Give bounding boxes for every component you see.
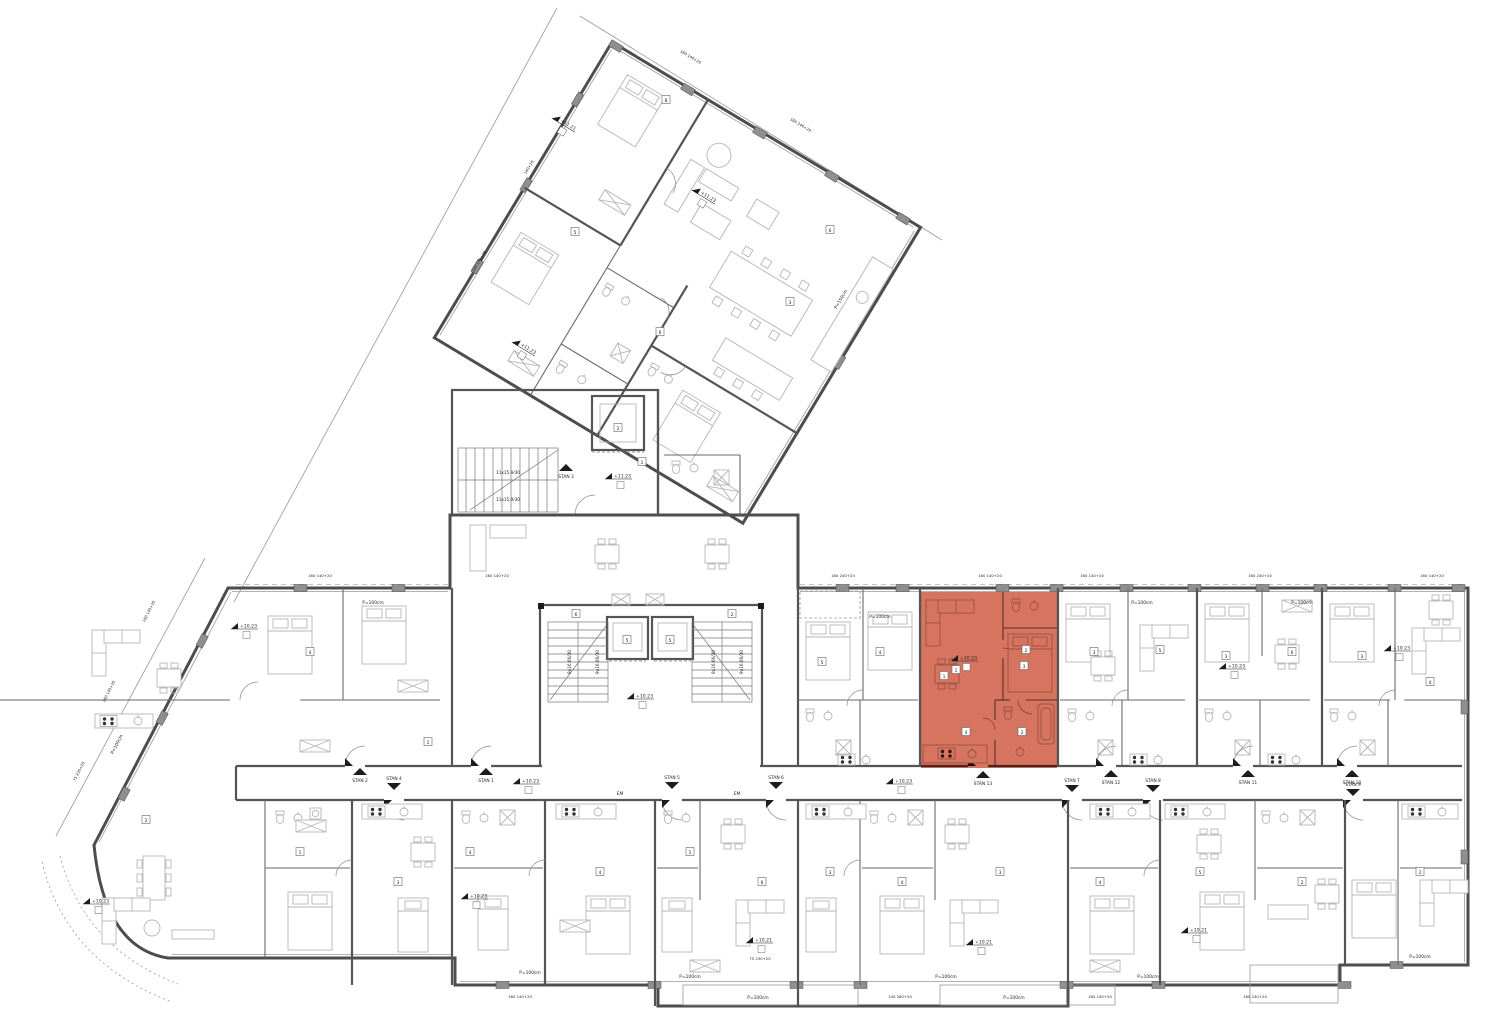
svg-text:2: 2	[1025, 648, 1028, 654]
room-tag: 4	[596, 868, 604, 876]
svg-text:1: 1	[641, 460, 644, 466]
svg-text:P=100cm: P=100cm	[1291, 600, 1312, 606]
room-tag: 4	[1426, 678, 1434, 686]
svg-text:1: 1	[943, 674, 946, 680]
room-tag: 2	[1298, 878, 1306, 886]
room-tag: 5	[666, 636, 674, 644]
svg-text:75 230+20: 75 230+20	[72, 760, 86, 782]
room-tag: 5	[571, 228, 579, 236]
svg-text:6: 6	[659, 330, 662, 336]
unit-label: STAN 8	[1145, 778, 1161, 792]
svg-text:STAN 4: STAN 4	[386, 776, 402, 782]
svg-text:3: 3	[1023, 664, 1026, 670]
room-tag: 1	[296, 848, 304, 856]
room-tag: 8	[662, 96, 670, 104]
room-tag: 4	[962, 728, 970, 736]
room-number-tags: 4154123536341344163434522256312655213248…	[142, 96, 1434, 886]
svg-text:160 140+20: 160 140+20	[679, 48, 702, 65]
room-tag: 1	[638, 458, 646, 466]
svg-text:4: 4	[469, 850, 472, 856]
svg-text:11x15.9/30: 11x15.9/30	[496, 470, 520, 475]
svg-text:1: 1	[689, 850, 692, 856]
svg-text:4: 4	[901, 880, 904, 886]
svg-text:P=100cm: P=100cm	[747, 995, 768, 1001]
svg-text:160 140+20: 160 140+20	[101, 679, 116, 703]
svg-text:6: 6	[829, 228, 832, 234]
svg-text:160 240+20: 160 240+20	[1248, 573, 1272, 578]
svg-text:STAN 1: STAN 1	[478, 778, 494, 784]
unit-label: STAN 6	[768, 775, 784, 789]
svg-text:P=100cm: P=100cm	[1131, 600, 1152, 606]
parcel-lines	[42, 8, 942, 1002]
svg-text:STAN 7: STAN 7	[1064, 778, 1080, 784]
svg-text:P=100cm: P=100cm	[1137, 974, 1158, 980]
svg-text:4: 4	[965, 730, 968, 736]
svg-text:2: 2	[1021, 730, 1024, 736]
svg-text:5: 5	[669, 638, 672, 644]
svg-text:3: 3	[999, 870, 1002, 876]
room-tag: 6	[826, 226, 834, 234]
svg-text:1: 1	[955, 668, 958, 674]
svg-text:2: 2	[731, 612, 734, 618]
svg-text:+10.23: +10.23	[1228, 664, 1245, 670]
room-tag: 3	[1020, 662, 1028, 670]
unit-label: STAN 3	[558, 464, 574, 480]
svg-text:+10.23: +10.23	[92, 899, 109, 905]
svg-text:STAN 13: STAN 13	[974, 781, 993, 787]
svg-text:5: 5	[1159, 648, 1162, 654]
svg-text:3: 3	[789, 300, 792, 306]
svg-text:P=100cm: P=100cm	[679, 974, 700, 980]
svg-text:9x16.66/30: 9x16.66/30	[567, 650, 572, 674]
room-tag: 6	[656, 328, 664, 336]
stair-core	[538, 594, 764, 766]
room-tag: 2	[1022, 646, 1030, 654]
svg-text:75 230+20: 75 230+20	[749, 956, 771, 961]
svg-text:P=100cm: P=100cm	[869, 614, 890, 620]
svg-text:+10.23: +10.23	[470, 894, 487, 900]
svg-text:P=100cm: P=100cm	[362, 600, 383, 606]
svg-text:+10.23: +10.23	[522, 779, 539, 785]
svg-text:5: 5	[574, 230, 577, 236]
upper-staircase	[458, 448, 558, 512]
svg-text:160 240+20: 160 240+20	[831, 573, 855, 578]
svg-text:3: 3	[1361, 654, 1364, 660]
svg-text:4: 4	[309, 650, 312, 656]
svg-text:STAN 8: STAN 8	[1145, 778, 1161, 784]
level-marker: +11.23	[605, 473, 632, 489]
svg-text:160 140+20: 160 140+20	[1080, 573, 1104, 578]
svg-text:2: 2	[145, 818, 148, 824]
svg-text:STAN 11: STAN 11	[1239, 780, 1258, 786]
svg-text:3: 3	[1225, 654, 1228, 660]
svg-text:6: 6	[1291, 650, 1294, 656]
room-tag: 2	[142, 816, 150, 824]
svg-text:+10.23: +10.23	[240, 624, 257, 630]
svg-text:3: 3	[829, 870, 832, 876]
svg-text:3: 3	[1093, 650, 1096, 656]
room-tag: 3	[1358, 652, 1366, 660]
svg-text:8: 8	[665, 98, 668, 104]
svg-text:160 140+20: 160 140+20	[1088, 994, 1112, 999]
room-tag: 1	[424, 738, 432, 746]
svg-text:P=100cm: P=100cm	[1409, 954, 1430, 960]
room-tag: 5	[1196, 868, 1204, 876]
level-marker: +10.23	[886, 778, 913, 794]
level-marker: +10.23	[1219, 663, 1246, 679]
svg-text:+11.23: +11.23	[614, 474, 631, 480]
svg-text:4: 4	[879, 650, 882, 656]
unit-label: STAN 13	[974, 771, 993, 787]
svg-text:160 140+20: 160 140+20	[1420, 573, 1444, 578]
upper-wing	[432, 39, 924, 525]
floor-plan-canvas: STAN 2STAN 4STAN 1STAN 3STAN 5STAN 6STAN…	[0, 0, 1500, 1013]
svg-text:1: 1	[299, 850, 302, 856]
svg-text:160 140+20: 160 140+20	[485, 573, 509, 578]
room-tag: 4	[1096, 878, 1104, 886]
room-tag: 6	[572, 610, 580, 618]
svg-text:P=100cm: P=100cm	[110, 734, 125, 756]
svg-text:+10.23: +10.23	[960, 656, 977, 662]
svg-text:2: 2	[1301, 880, 1304, 886]
svg-text:STAN 6: STAN 6	[768, 775, 784, 781]
room-tag: 3	[826, 868, 834, 876]
room-tag: 4	[306, 648, 314, 656]
svg-text:160 140+20: 160 140+20	[141, 599, 156, 623]
svg-text:5: 5	[821, 660, 824, 666]
room-tag: 1	[686, 848, 694, 856]
svg-text:160 240+20: 160 240+20	[1243, 994, 1267, 999]
level-marker: +10.23	[1384, 645, 1411, 661]
svg-text:160 140+20: 160 140+20	[508, 994, 532, 999]
room-tag: 2	[614, 424, 622, 432]
svg-text:9x16.66/30: 9x16.66/30	[711, 650, 716, 674]
unit-label: STAN 7	[1064, 778, 1080, 792]
unit-label: STAN 1	[478, 768, 494, 784]
unit-label: STAN 12	[1102, 770, 1121, 786]
svg-text:160 240+20: 160 240+20	[789, 116, 812, 133]
svg-text:2: 2	[1419, 870, 1422, 876]
level-markers: +10.23+10.23+10.23+10.23+10.23+10.23+10.…	[83, 113, 1411, 954]
room-tag: 3	[394, 878, 402, 886]
room-tag: 4	[466, 848, 474, 856]
svg-text:5: 5	[1199, 870, 1202, 876]
room-tag: 2	[1018, 728, 1026, 736]
svg-text:6: 6	[761, 880, 764, 886]
svg-text:STAN 12: STAN 12	[1102, 780, 1121, 786]
svg-text:P=100cm: P=100cm	[519, 970, 540, 976]
svg-text:3: 3	[397, 880, 400, 886]
svg-text:+10.23: +10.23	[895, 779, 912, 785]
unit-label: STAN 5	[664, 775, 680, 789]
unit-label: STAN 11	[1239, 770, 1258, 786]
svg-text:4: 4	[1099, 880, 1102, 886]
furniture-layer	[92, 461, 1468, 972]
unit-label: STAN 4	[386, 776, 402, 790]
svg-text:+10.21: +10.21	[1190, 928, 1207, 934]
svg-text:P=100cm: P=100cm	[1003, 995, 1024, 1001]
svg-text:9x16.66/30: 9x16.66/30	[595, 650, 600, 674]
svg-text:160 140+20: 160 140+20	[978, 573, 1002, 578]
room-tag: 1	[940, 672, 948, 680]
unit-label: STAN 2	[352, 768, 368, 784]
level-marker: +10.23	[231, 623, 258, 639]
svg-text:6: 6	[575, 612, 578, 618]
room-tag: 3	[1090, 648, 1098, 656]
svg-text:1: 1	[427, 740, 430, 746]
room-tag: 4	[876, 648, 884, 656]
svg-text:+10.23: +10.23	[1393, 646, 1410, 652]
svg-text:STAN 2: STAN 2	[352, 778, 368, 784]
level-marker: +10.23	[513, 778, 540, 794]
room-tag: 3	[996, 868, 1004, 876]
level-marker: +10.21	[966, 939, 993, 955]
svg-text:4: 4	[1429, 680, 1432, 686]
svg-text:160 140+20: 160 140+20	[308, 573, 332, 578]
svg-text:EM: EM	[617, 791, 624, 797]
room-tag: 1	[952, 666, 960, 674]
highlighted-unit-stan-13[interactable]	[921, 592, 1057, 768]
room-tag: 5	[818, 658, 826, 666]
svg-text:140 260+20: 140 260+20	[888, 994, 912, 999]
svg-text:9x16.66/30: 9x16.66/30	[739, 650, 744, 674]
svg-text:EM: EM	[734, 791, 741, 797]
dimension-texts: 160 140+20160 140+20160 240+20160 140+20…	[72, 48, 1445, 999]
room-tag: 6	[758, 878, 766, 886]
svg-text:11x15.9/30: 11x15.9/30	[496, 497, 520, 502]
svg-text:+10.21: +10.21	[755, 938, 772, 944]
svg-text:STAN 3: STAN 3	[558, 474, 574, 480]
level-marker: +10.23	[627, 693, 654, 709]
svg-text:+10.23: +10.23	[636, 694, 653, 700]
svg-text:2: 2	[617, 426, 620, 432]
room-tag: 4	[898, 878, 906, 886]
unit-label: STAN 9	[1345, 782, 1361, 796]
room-tag: 6	[1288, 648, 1296, 656]
room-tag: 3	[786, 298, 794, 306]
svg-text:+10.21: +10.21	[975, 940, 992, 946]
svg-text:5: 5	[626, 638, 629, 644]
room-tag: 2	[1416, 868, 1424, 876]
room-tag: 5	[1156, 646, 1164, 654]
svg-text:4: 4	[599, 870, 602, 876]
room-tag: 2	[728, 610, 736, 618]
svg-text:STAN 9: STAN 9	[1345, 782, 1361, 788]
room-tag: 5	[623, 636, 631, 644]
svg-text:P=100cm: P=100cm	[935, 974, 956, 980]
floor-plan-drawing: STAN 2STAN 4STAN 1STAN 3STAN 5STAN 6STAN…	[0, 0, 1500, 1013]
svg-text:STAN 5: STAN 5	[664, 775, 680, 781]
room-tag: 3	[1222, 652, 1230, 660]
